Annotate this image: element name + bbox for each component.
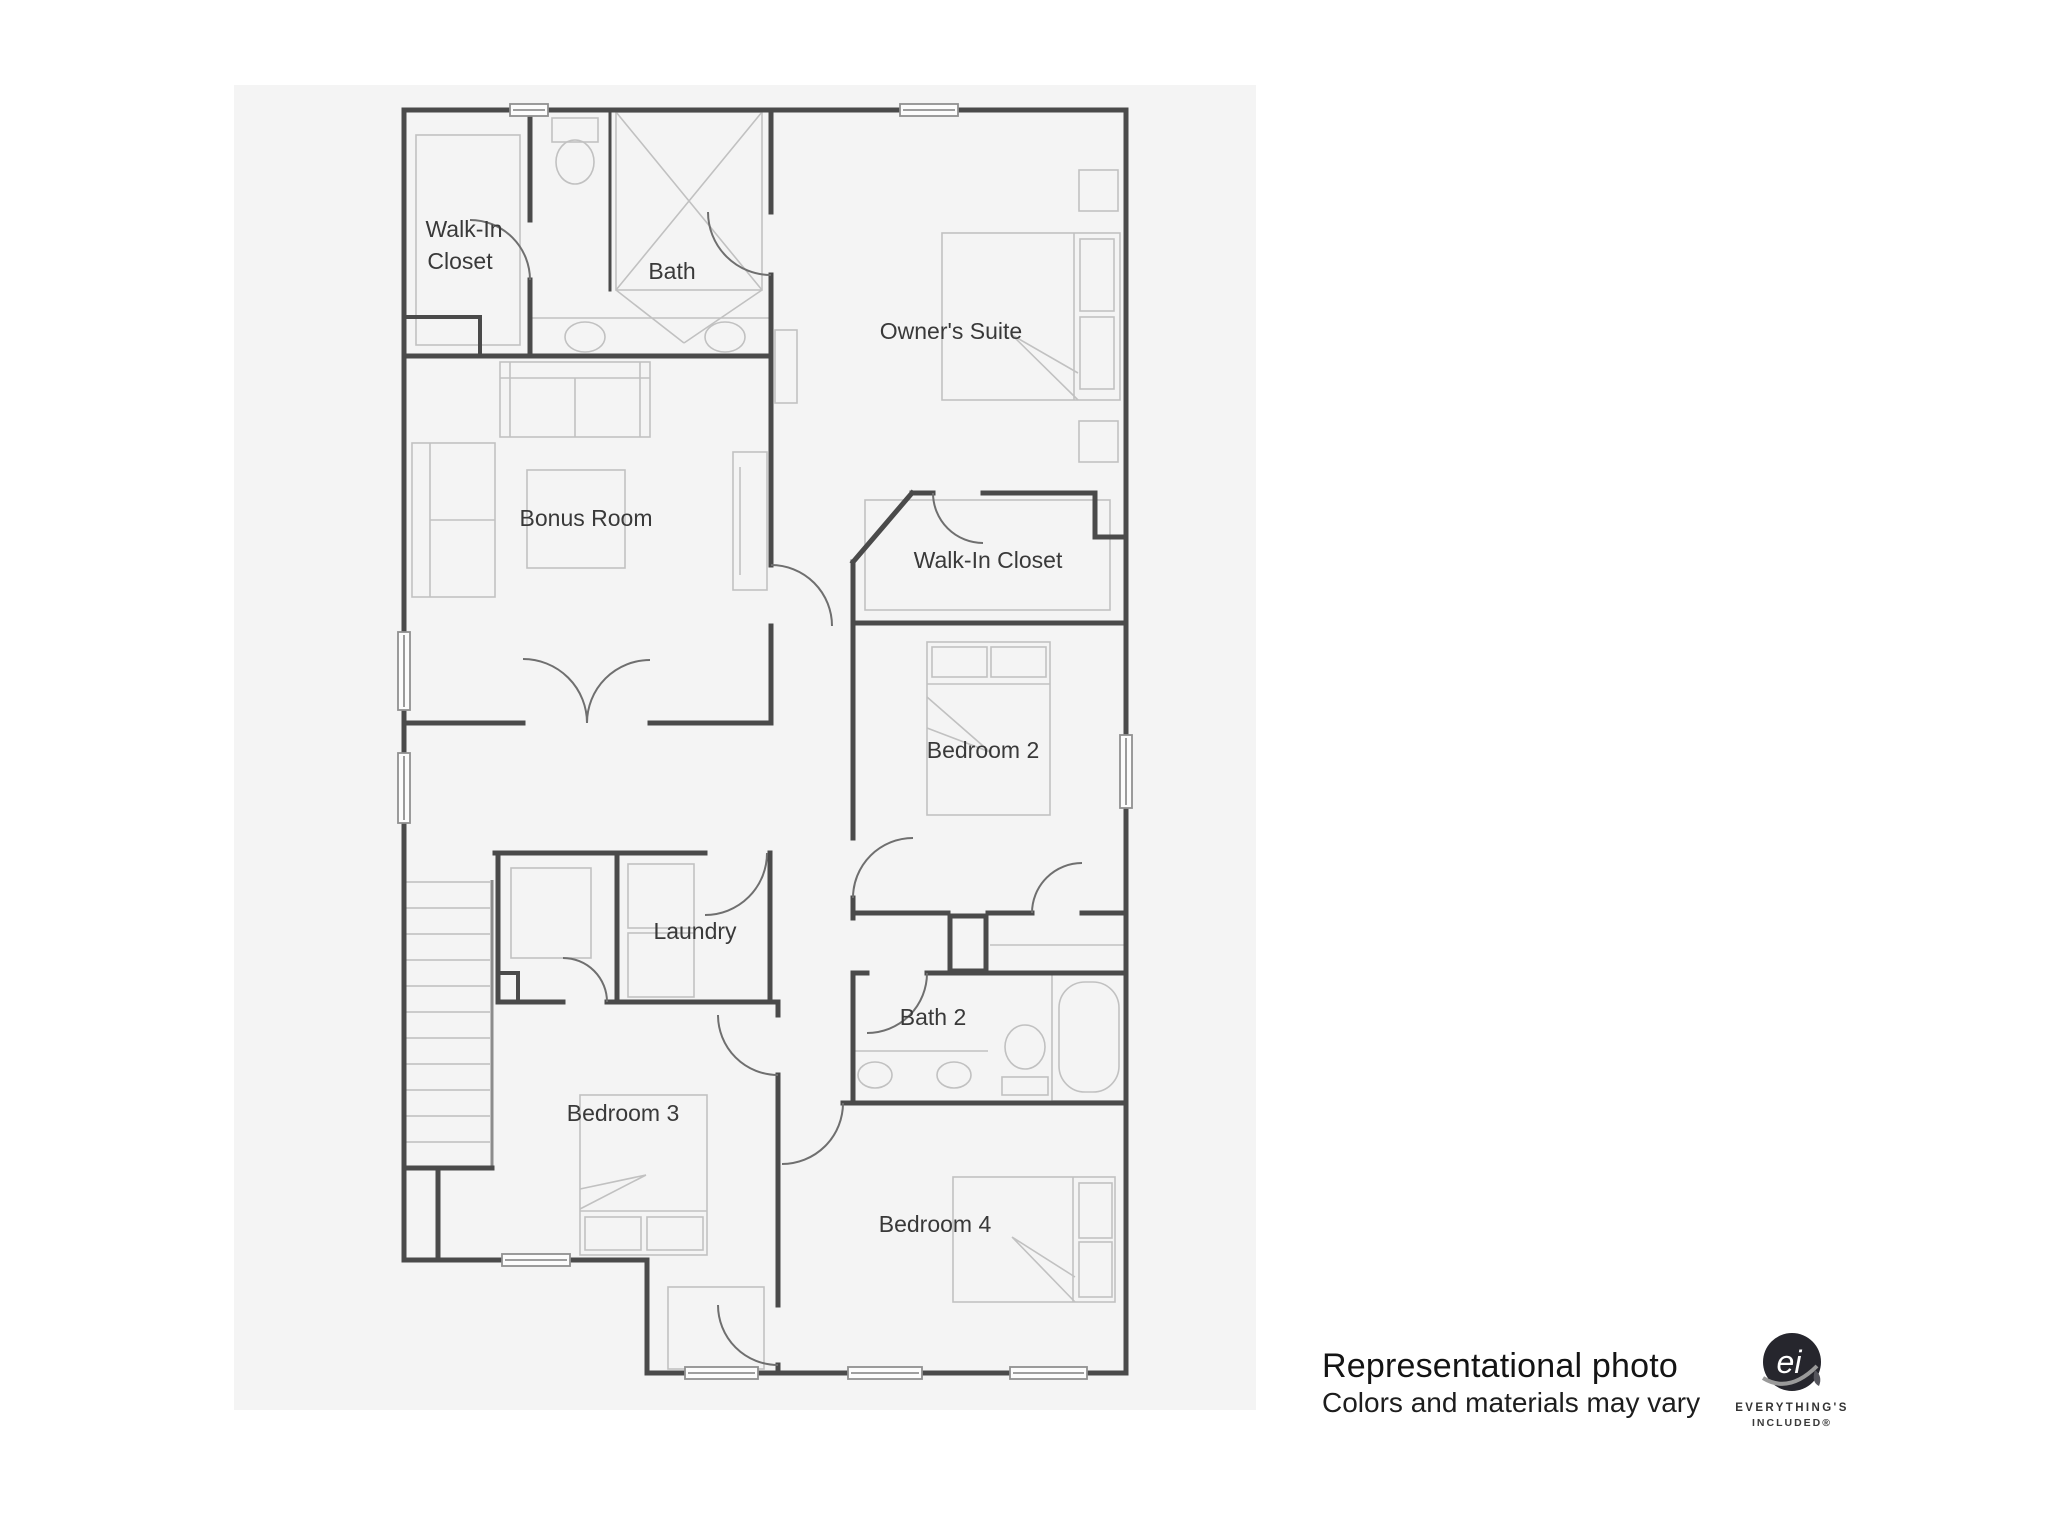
room-label-bedroom-2: Bedroom 2	[927, 737, 1040, 763]
room-label-bath-2: Bath 2	[900, 1004, 967, 1030]
floor-plan-container: Walk-In Closet Bath Owner's Suite Bonus …	[234, 85, 1256, 1410]
listing-floor-plan-page: Walk-In Closet Bath Owner's Suite Bonus …	[0, 0, 2048, 1536]
window-icon	[398, 632, 410, 710]
window-icon	[900, 104, 958, 116]
window-icon	[502, 1254, 570, 1266]
room-label-bedroom-4: Bedroom 4	[879, 1211, 992, 1237]
window-icon	[1010, 1367, 1087, 1379]
disclaimer: Representational photo Colors and materi…	[1322, 1346, 1700, 1419]
room-label-bedroom-3: Bedroom 3	[567, 1100, 680, 1126]
ei-logo-icon: ei	[1759, 1332, 1825, 1396]
room-label-walk-in-closet-1-line1: Walk-In	[425, 216, 502, 242]
room-label-laundry: Laundry	[653, 918, 737, 944]
disclaimer-line1: Representational photo	[1322, 1346, 1700, 1386]
room-label-owners-suite: Owner's Suite	[880, 318, 1022, 344]
room-label-bonus-room: Bonus Room	[520, 505, 653, 531]
ei-monogram: ei	[1777, 1344, 1803, 1380]
window-icon	[848, 1367, 922, 1379]
window-icon	[1120, 735, 1132, 808]
room-label-bath: Bath	[648, 258, 695, 284]
disclaimer-line2: Colors and materials may vary	[1322, 1386, 1700, 1419]
window-icon	[685, 1367, 758, 1379]
brand-line2: INCLUDED®	[1732, 1417, 1852, 1429]
room-label-walk-in-closet-2: Walk-In Closet	[914, 547, 1063, 573]
window-icon	[398, 753, 410, 823]
plan-background	[234, 85, 1256, 1410]
window-icon	[510, 104, 548, 116]
brand-line1: EVERYTHING'S	[1732, 1402, 1852, 1414]
floor-plan-image: Walk-In Closet Bath Owner's Suite Bonus …	[234, 85, 1256, 1410]
everything-included-logo: ei EVERYTHING'S INCLUDED®	[1732, 1332, 1852, 1429]
room-label-walk-in-closet-1-line2: Closet	[427, 248, 493, 274]
